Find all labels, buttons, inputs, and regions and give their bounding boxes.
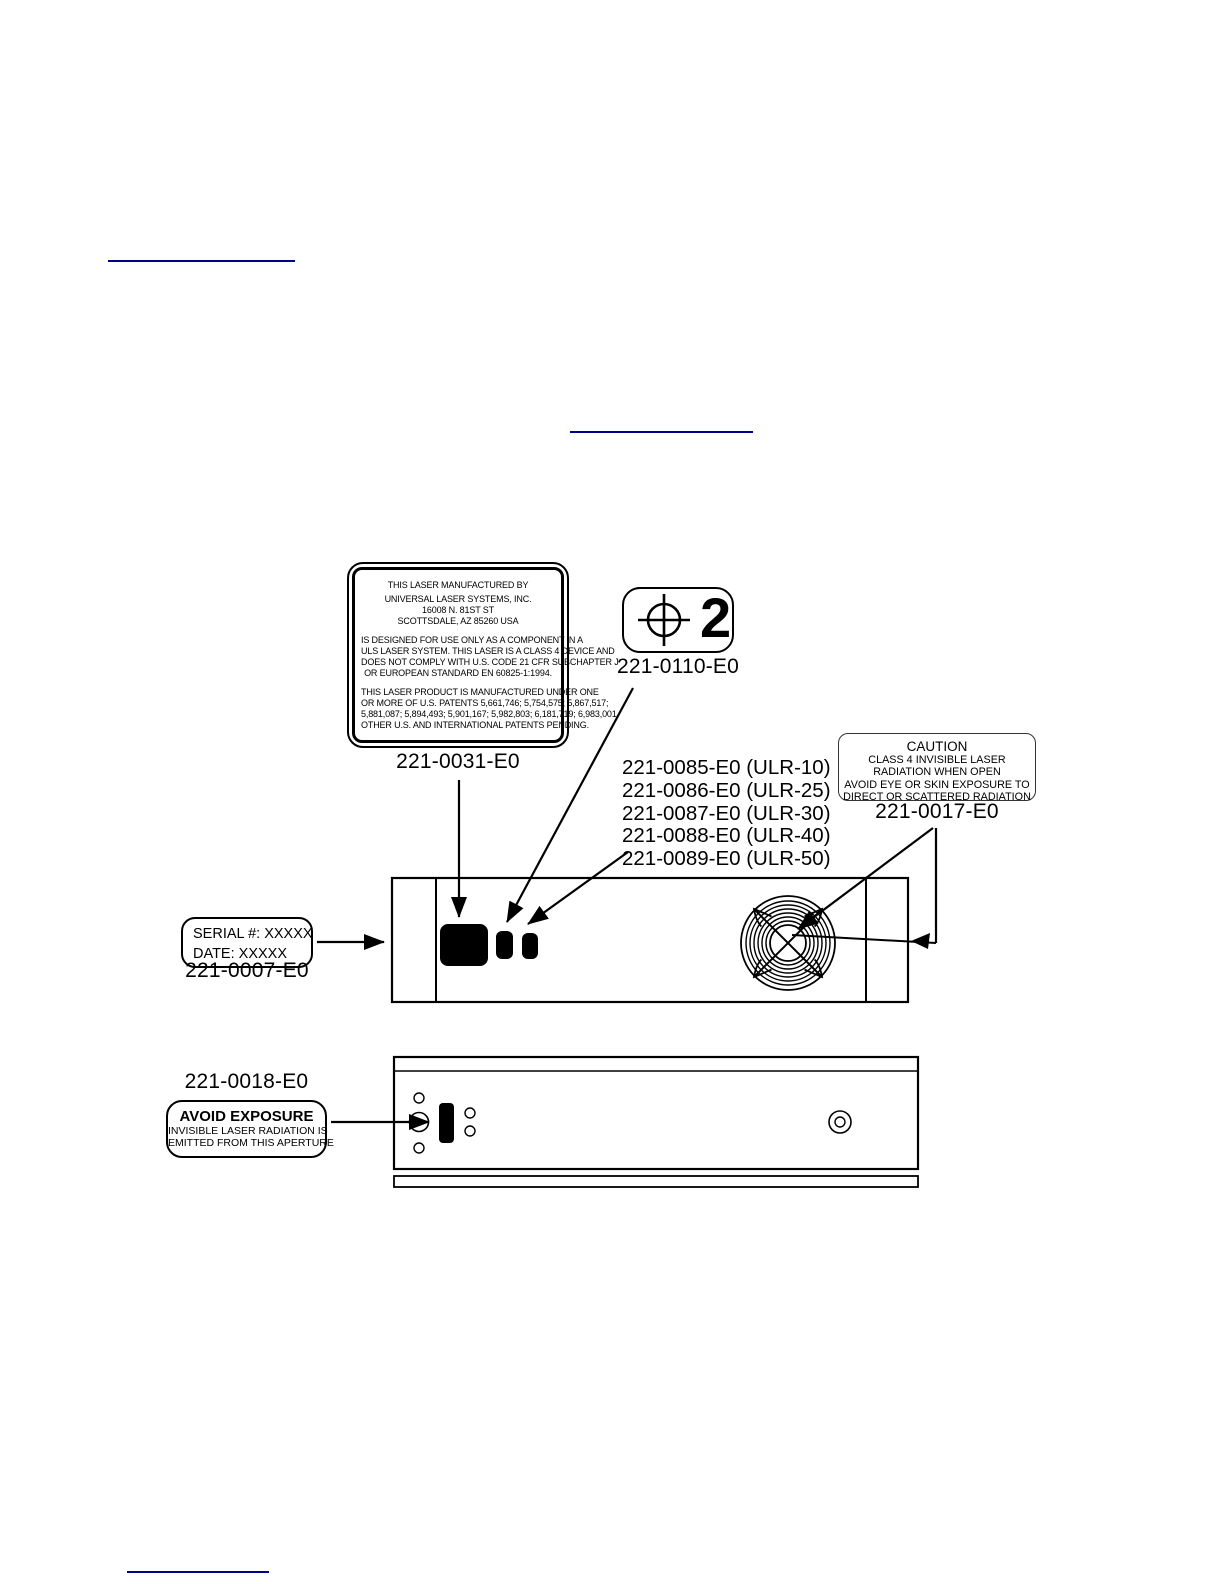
patents-paragraph: THIS LASER PRODUCT IS MANUFACTURED UNDER… [361, 687, 555, 731]
avoid-exposure-label: AVOID EXPOSURE INVISIBLE LASER RADIATION… [166, 1100, 327, 1158]
manual-page: THIS LASER MANUFACTURED BY UNIVERSAL LAS… [0, 0, 1224, 1584]
label-text-line: SCOTTSDALE, AZ 85260 USA [361, 616, 555, 627]
alignment-label: 2 [622, 587, 734, 653]
front-panel-base-strip [394, 1176, 918, 1187]
label-text-line: ULS LASER SYSTEM. THIS LASER IS A CLASS … [361, 646, 555, 657]
label-text-line: OR MORE OF U.S. PATENTS 5,661,746; 5,754… [361, 698, 555, 709]
label-text-line: UNIVERSAL LASER SYSTEMS, INC. [361, 594, 555, 605]
model-part-number: 221-0089-E0 (ULR-50) [622, 848, 831, 871]
part-number-caution-label: 221-0017-E0 [838, 800, 1036, 824]
label-text-line: 5,881,087; 5,894,493; 5,901,167; 5,982,8… [361, 709, 555, 720]
caution-label: CAUTION CLASS 4 INVISIBLE LASER RADIATIO… [838, 733, 1036, 801]
label-text-line: THIS LASER MANUFACTURED BY [361, 580, 555, 591]
crosshair-target-icon [636, 592, 692, 648]
alignment-number: 2 [700, 590, 731, 646]
part-number-alignment-label: 221-0110-E0 [615, 655, 741, 679]
label-text-line: RADIATION WHEN OPEN [839, 766, 1035, 778]
avoid-exposure-title: AVOID EXPOSURE [168, 1108, 325, 1125]
model-part-number: 221-0085-E0 (ULR-10) [622, 757, 831, 780]
caution-title: CAUTION [839, 739, 1035, 754]
model-part-number-list: 221-0085-E0 (ULR-10) 221-0086-E0 (ULR-25… [622, 757, 831, 871]
manufacturer-label-placement [440, 924, 488, 966]
part-number-manufacturer-label: 221-0031-E0 [347, 750, 569, 774]
rear-view-drawing [392, 878, 908, 1002]
label-text-line: DOES NOT COMPLY WITH U.S. CODE 21 CFR SU… [361, 657, 555, 668]
manufacturer-label-border: THIS LASER MANUFACTURED BY UNIVERSAL LAS… [352, 567, 564, 743]
label-text-line: OR EUROPEAN STANDARD EN 60825-1:1994. [361, 668, 555, 679]
model-label-placement [522, 933, 538, 959]
alignment-label-placement [496, 931, 513, 959]
part-number-aperture-label: 221-0018-E0 [166, 1070, 327, 1094]
label-text-line: IS DESIGNED FOR USE ONLY AS A COMPONENT … [361, 635, 555, 646]
caution-pointer-arrowhead [911, 933, 930, 949]
manufacturer-address-paragraph: THIS LASER MANUFACTURED BY UNIVERSAL LAS… [361, 580, 555, 627]
serial-number-line: SERIAL #: XXXXX [193, 924, 311, 944]
label-text-line: 16008 N. 81ST ST [361, 605, 555, 616]
front-view-drawing [394, 1057, 918, 1187]
part-number-serial-label: 221-0007-E0 [181, 959, 313, 983]
figure-canvas [0, 0, 1224, 1584]
label-text-line: OTHER U.S. AND INTERNATIONAL PATENTS PEN… [361, 720, 555, 731]
label-text-line: AVOID EYE OR SKIN EXPOSURE TO [839, 779, 1035, 791]
front-panel-outline [394, 1057, 918, 1169]
aperture-label-placement [439, 1103, 454, 1143]
model-part-number: 221-0086-E0 (ULR-25) [622, 780, 831, 803]
label-text-line: THIS LASER PRODUCT IS MANUFACTURED UNDER… [361, 687, 555, 698]
compliance-paragraph: IS DESIGNED FOR USE ONLY AS A COMPONENT … [361, 635, 555, 679]
label-text-line: EMITTED FROM THIS APERTURE [168, 1137, 325, 1149]
model-part-number: 221-0087-E0 (ULR-30) [622, 803, 831, 826]
manufacturer-label: THIS LASER MANUFACTURED BY UNIVERSAL LAS… [347, 562, 569, 748]
model-part-number: 221-0088-E0 (ULR-40) [622, 825, 831, 848]
label-text-line: INVISIBLE LASER RADIATION IS [168, 1125, 325, 1137]
label-text-line: CLASS 4 INVISIBLE LASER [839, 754, 1035, 766]
